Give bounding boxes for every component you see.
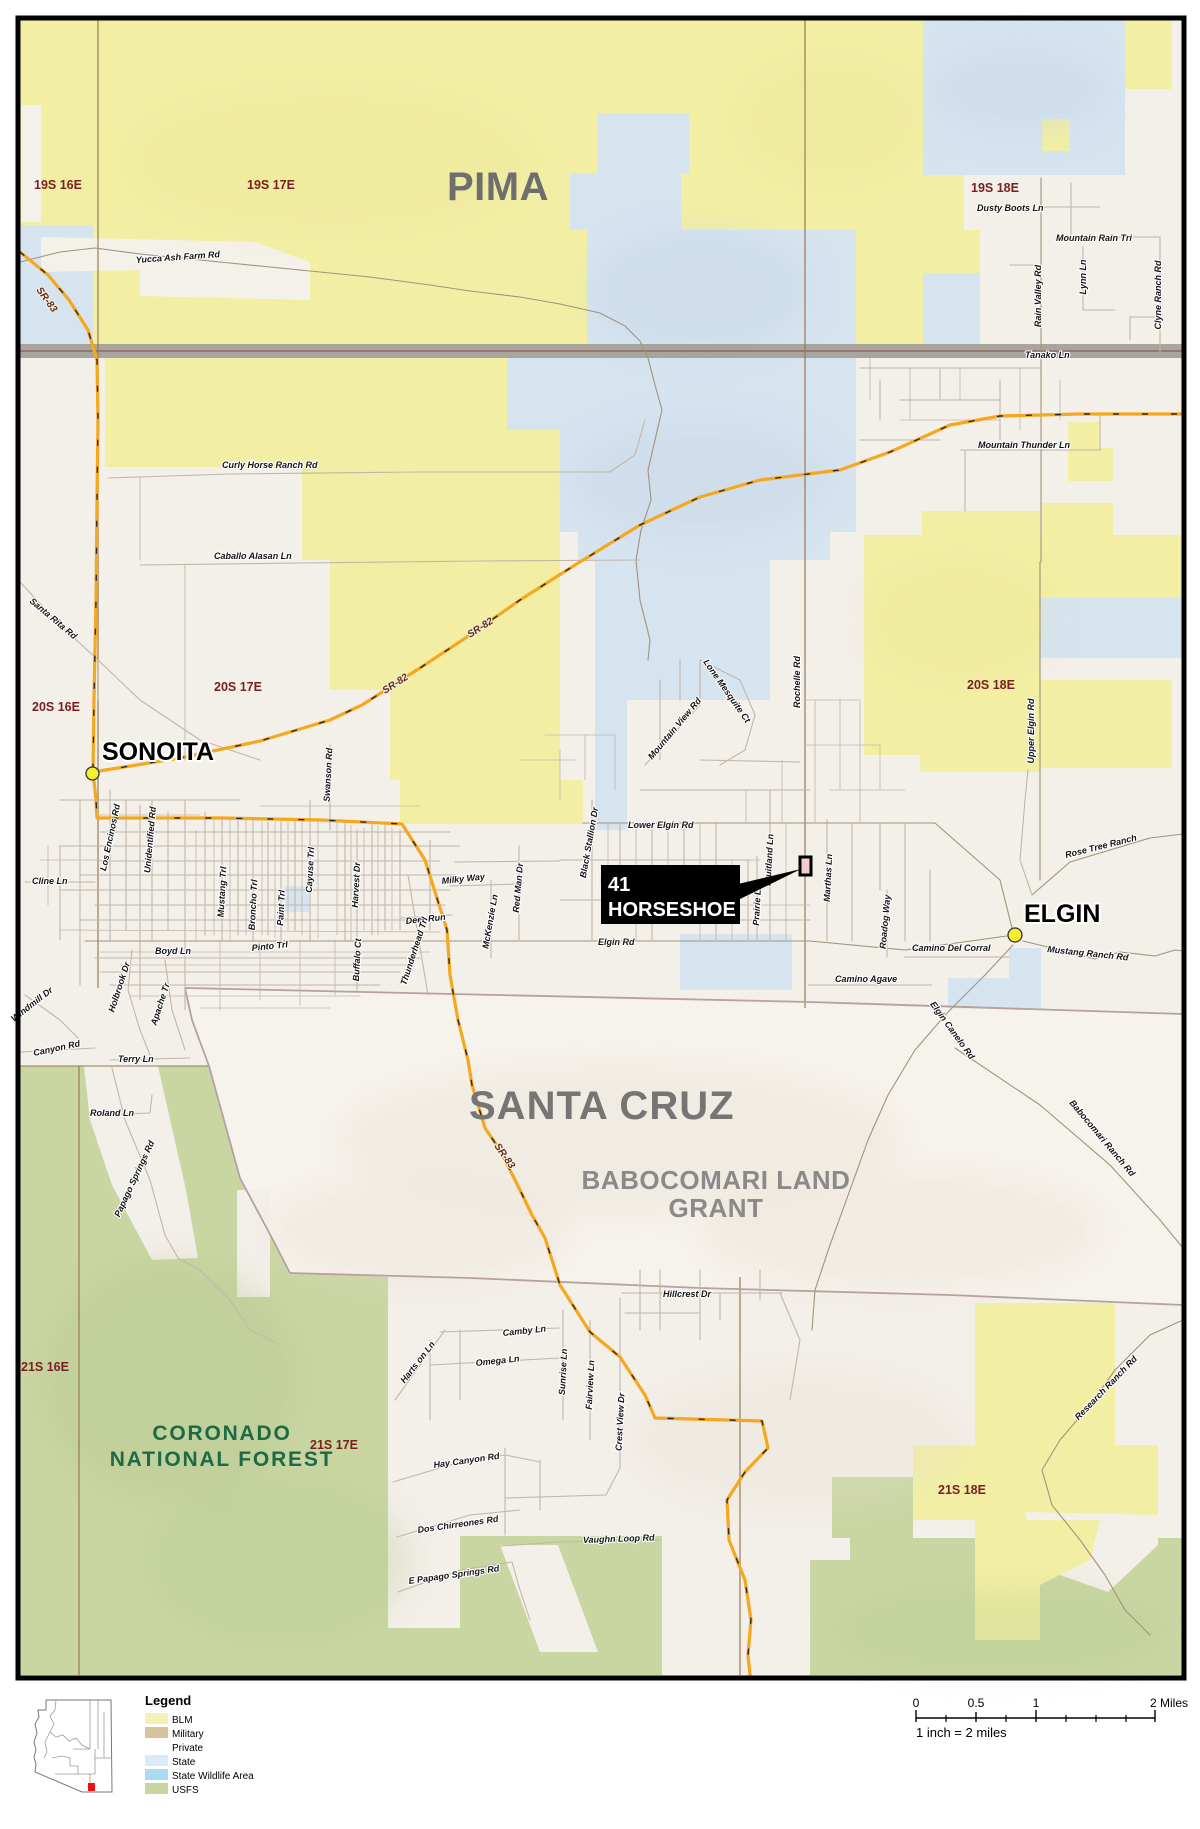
svg-text:Camino Agave: Camino Agave bbox=[835, 974, 897, 984]
svg-text:SANTA CRUZ: SANTA CRUZ bbox=[469, 1084, 735, 1128]
svg-text:SONOITA: SONOITA bbox=[102, 738, 214, 766]
svg-text:Upper Elgin Rd: Upper Elgin Rd bbox=[1026, 698, 1036, 764]
svg-text:20S 16E: 20S 16E bbox=[32, 700, 80, 714]
svg-text:Lower Elgin Rd: Lower Elgin Rd bbox=[628, 820, 694, 830]
svg-text:Camino Del Corral: Camino Del Corral bbox=[912, 943, 991, 953]
svg-text:Paint Trl: Paint Trl bbox=[275, 889, 287, 926]
svg-text:0.5: 0.5 bbox=[968, 1696, 985, 1710]
svg-text:20S 18E: 20S 18E bbox=[967, 678, 1015, 692]
svg-text:Elgin Rd: Elgin Rd bbox=[598, 937, 635, 947]
svg-text:Rain Valley Rd: Rain Valley Rd bbox=[1033, 264, 1043, 327]
svg-text:Rochelle Rd: Rochelle Rd bbox=[792, 655, 802, 708]
svg-text:Dusty Boots Ln: Dusty Boots Ln bbox=[977, 203, 1044, 213]
svg-text:NATIONAL FOREST: NATIONAL FOREST bbox=[110, 1448, 335, 1471]
svg-text:Roland Ln: Roland Ln bbox=[90, 1108, 134, 1118]
svg-text:20S 17E: 20S 17E bbox=[214, 680, 262, 694]
svg-text:HORSESHOE: HORSESHOE bbox=[608, 899, 736, 921]
svg-text:Clyne Ranch Rd: Clyne Ranch Rd bbox=[1153, 260, 1163, 330]
svg-text:0: 0 bbox=[913, 1696, 920, 1710]
svg-text:Curly Horse Ranch Rd: Curly Horse Ranch Rd bbox=[222, 460, 318, 470]
svg-text:CORONADO: CORONADO bbox=[152, 1422, 291, 1445]
svg-text:Private: Private bbox=[172, 1743, 204, 1754]
svg-text:USFS: USFS bbox=[172, 1785, 199, 1796]
svg-text:1 inch = 2 miles: 1 inch = 2 miles bbox=[916, 1725, 1007, 1740]
svg-text:ELGIN: ELGIN bbox=[1024, 900, 1100, 928]
svg-text:Military: Military bbox=[172, 1729, 204, 1740]
svg-text:Terry Ln: Terry Ln bbox=[118, 1054, 154, 1064]
svg-text:21S 17E: 21S 17E bbox=[310, 1438, 358, 1452]
svg-text:Cline Ln: Cline Ln bbox=[32, 876, 68, 886]
svg-text:PIMA: PIMA bbox=[447, 165, 549, 209]
svg-text:19S 17E: 19S 17E bbox=[247, 178, 295, 192]
svg-text:2 Miles: 2 Miles bbox=[1150, 1696, 1188, 1710]
svg-text:Hillcrest Dr: Hillcrest Dr bbox=[663, 1289, 712, 1299]
svg-text:21S 18E: 21S 18E bbox=[938, 1483, 986, 1497]
svg-text:Caballo Alasan Ln: Caballo Alasan Ln bbox=[214, 551, 292, 561]
svg-text:State: State bbox=[172, 1757, 196, 1768]
svg-text:19S 16E: 19S 16E bbox=[34, 178, 82, 192]
svg-text:Legend: Legend bbox=[145, 1693, 191, 1708]
svg-text:Mountain Rain Tri: Mountain Rain Tri bbox=[1056, 233, 1132, 243]
svg-text:BABOCOMARI LAND: BABOCOMARI LAND bbox=[582, 1165, 851, 1195]
svg-text:Tanako Ln: Tanako Ln bbox=[1025, 350, 1070, 360]
svg-text:State Wildlife Area: State Wildlife Area bbox=[172, 1771, 254, 1782]
svg-text:GRANT: GRANT bbox=[669, 1193, 764, 1223]
svg-text:Boyd Ln: Boyd Ln bbox=[155, 946, 191, 956]
svg-text:Mountain Thunder Ln: Mountain Thunder Ln bbox=[978, 440, 1070, 450]
svg-text:1: 1 bbox=[1033, 1696, 1040, 1710]
svg-text:21S 16E: 21S 16E bbox=[21, 1360, 69, 1374]
svg-text:41: 41 bbox=[608, 874, 630, 896]
svg-text:BLM: BLM bbox=[172, 1715, 193, 1726]
svg-text:Lynn Ln: Lynn Ln bbox=[1078, 259, 1088, 294]
svg-text:19S 18E: 19S 18E bbox=[971, 181, 1019, 195]
